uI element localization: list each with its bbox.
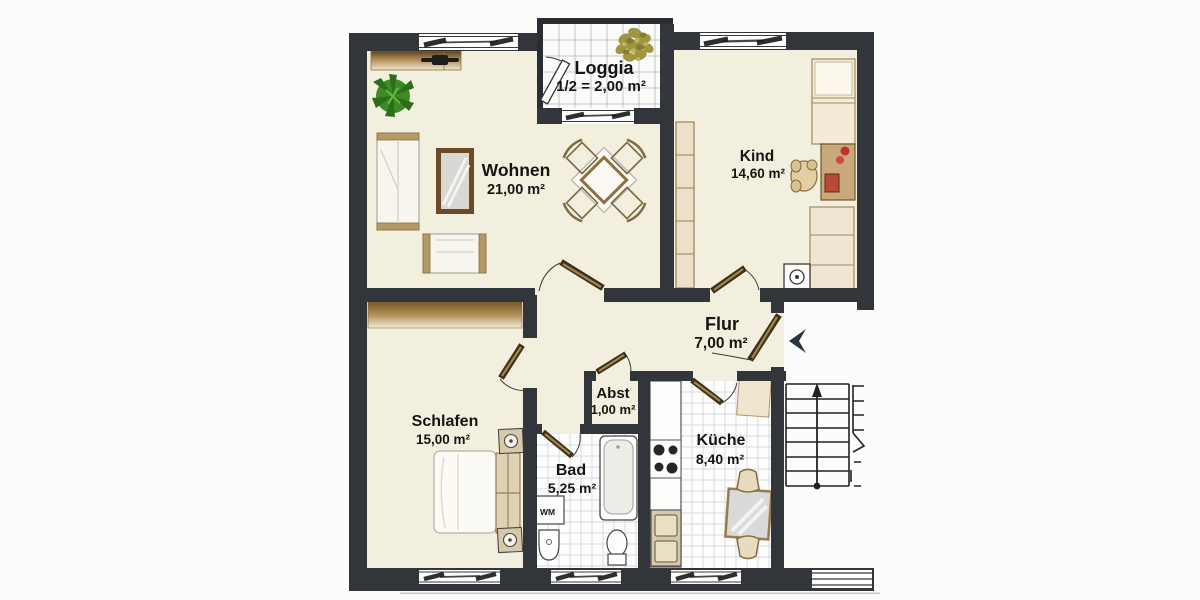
svg-text:1,00 m²: 1,00 m² (591, 402, 636, 417)
svg-text:7,00 m²: 7,00 m² (694, 335, 747, 352)
svg-text:Abst: Abst (596, 385, 629, 402)
svg-text:15,00 m²: 15,00 m² (416, 432, 471, 447)
svg-text:Küche: Küche (697, 432, 746, 449)
svg-text:Kind: Kind (740, 148, 774, 165)
svg-text:Wohnen: Wohnen (482, 160, 551, 180)
svg-text:Schlafen: Schlafen (412, 413, 479, 430)
svg-text:Loggia: Loggia (575, 58, 635, 78)
svg-text:Bad: Bad (556, 462, 586, 479)
svg-text:WM: WM (540, 507, 555, 517)
svg-text:14,60 m²: 14,60 m² (731, 166, 786, 181)
svg-text:5,25 m²: 5,25 m² (548, 480, 597, 496)
svg-text:1/2 = 2,00 m²: 1/2 = 2,00 m² (556, 78, 646, 95)
svg-text:21,00 m²: 21,00 m² (487, 182, 545, 198)
svg-text:Flur: Flur (705, 314, 739, 334)
svg-text:8,40 m²: 8,40 m² (696, 451, 745, 467)
